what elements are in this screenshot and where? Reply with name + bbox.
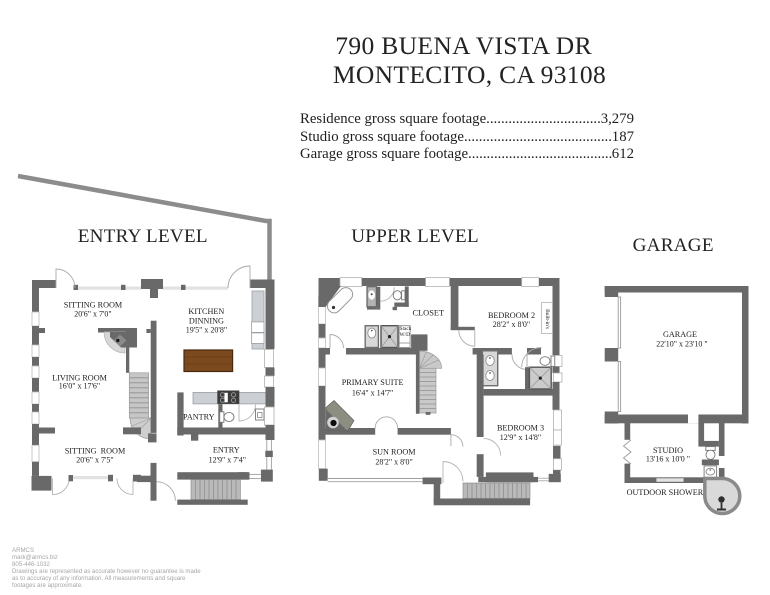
- svg-text:GARAGE: GARAGE: [663, 330, 697, 339]
- svg-text:BEDROOM 2: BEDROOM 2: [488, 311, 535, 320]
- svg-text:PANTRY: PANTRY: [183, 413, 215, 422]
- svg-text:BEDROOM 3: BEDROOM 3: [497, 424, 544, 433]
- svg-text:CLOSET: CLOSET: [412, 308, 444, 317]
- svg-text:22'10" x 23'10 ": 22'10" x 23'10 ": [656, 340, 707, 349]
- svg-text:DINNING: DINNING: [189, 317, 224, 326]
- svg-text:28'2" x 8'0": 28'2" x 8'0": [375, 457, 412, 466]
- svg-text:SITTING ROOM: SITTING ROOM: [64, 300, 123, 309]
- svg-text:20'6" x 7'0": 20'6" x 7'0": [74, 310, 111, 319]
- svg-text:W/D: W/D: [400, 332, 411, 338]
- svg-text:16'0" x 17'6": 16'0" x 17'6": [59, 381, 100, 390]
- svg-text:19'5" x 20'8": 19'5" x 20'8": [186, 326, 227, 335]
- svg-text:16'4" x 14'7": 16'4" x 14'7": [352, 389, 393, 398]
- svg-text:OUTDOOR SHOWER: OUTDOOR SHOWER: [627, 488, 704, 497]
- svg-text:12'9" x 14'8": 12'9" x 14'8": [500, 433, 541, 442]
- svg-text:ENTRY: ENTRY: [213, 446, 240, 455]
- svg-text:SITTING ROOM: SITTING ROOM: [65, 447, 126, 456]
- svg-text:12'9" x 7'4": 12'9" x 7'4": [209, 456, 246, 465]
- svg-text:KITCHEN: KITCHEN: [188, 307, 224, 316]
- svg-text:20'6" x 7'5": 20'6" x 7'5": [76, 456, 113, 465]
- svg-text:SUN ROOM: SUN ROOM: [373, 448, 417, 457]
- svg-text:PRIMARY SUITE: PRIMARY SUITE: [342, 378, 404, 387]
- svg-text:28'2" x 8'0": 28'2" x 8'0": [493, 320, 530, 329]
- svg-text:Built-in's: Built-in's: [544, 309, 550, 329]
- svg-text:13'16 x 10'0 ": 13'16 x 10'0 ": [646, 455, 690, 464]
